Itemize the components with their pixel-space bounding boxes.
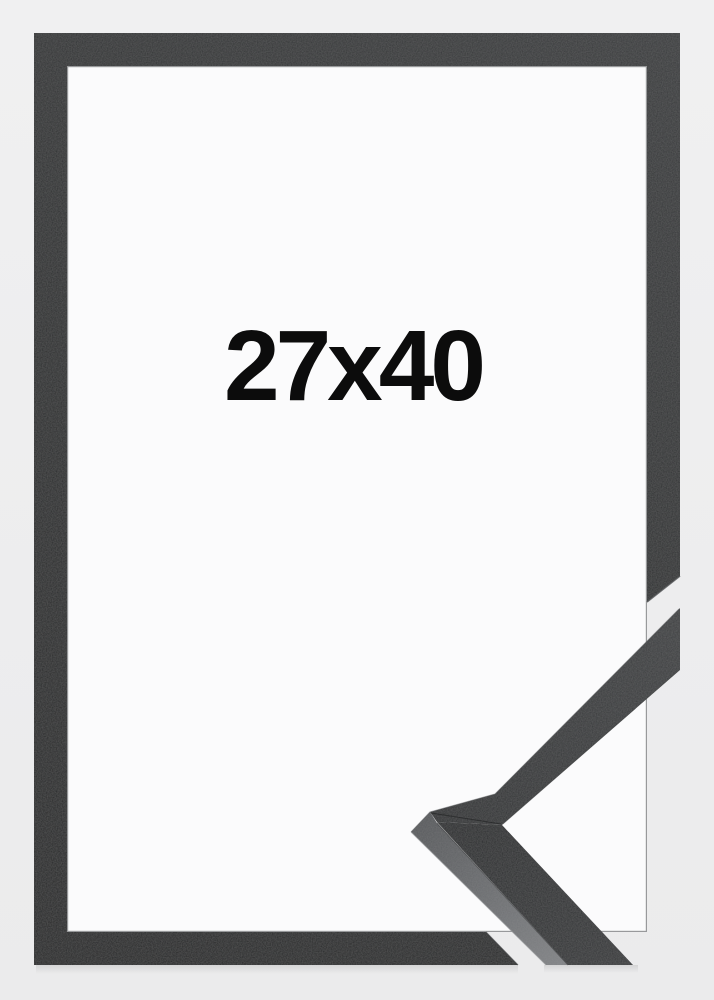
- size-label: 27x40: [224, 310, 482, 422]
- sample-bottom-shadow: [544, 965, 638, 973]
- frame-opening: [60, 60, 654, 940]
- product-photo: 27x40: [0, 0, 714, 1000]
- frame-bottom-shadow: [36, 965, 518, 974]
- frame-product-illustration: 27x40: [0, 0, 714, 1000]
